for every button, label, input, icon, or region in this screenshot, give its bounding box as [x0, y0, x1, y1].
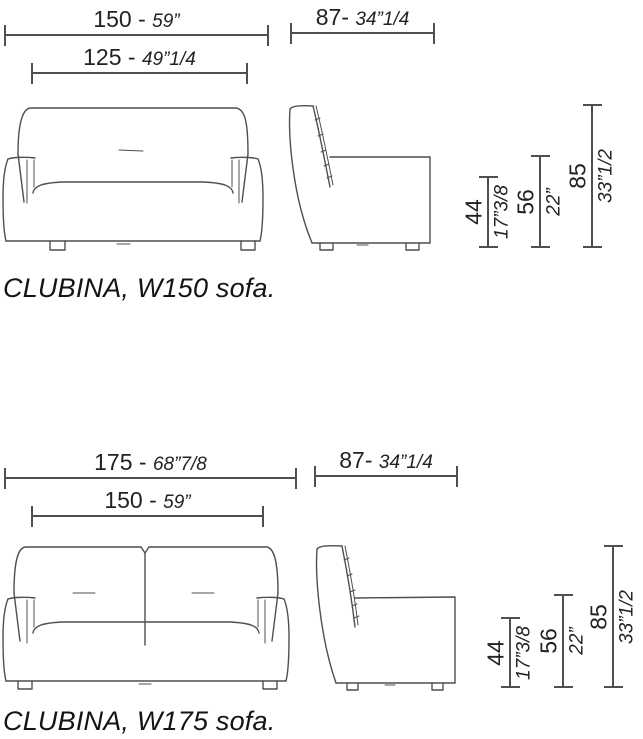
dim-cm: 44: [463, 199, 486, 225]
dim-tick: [604, 686, 623, 688]
dim-cm: 85: [588, 604, 611, 630]
dim-tick: [433, 23, 435, 44]
dim-tick: [4, 25, 6, 46]
dim-cm: 44: [485, 640, 508, 666]
dim-tick: [456, 466, 458, 487]
dim-tick: [501, 617, 520, 619]
dim-inch: 59”: [163, 492, 190, 513]
dim-cm: 150: [104, 487, 142, 513]
dim-line: [32, 515, 263, 517]
dim-cm: 87: [316, 4, 342, 30]
dim-sep: -: [122, 44, 142, 70]
dim-cm: 125: [83, 44, 121, 70]
dim-cm: 150: [93, 6, 131, 32]
dim-line: [509, 618, 511, 687]
dim-label: 150 - 59”: [5, 8, 268, 31]
dim-tick: [604, 545, 623, 547]
dim-tick: [531, 246, 550, 248]
dim-inch: 68”7/8: [153, 454, 207, 475]
dim-label: 150 - 59”: [32, 489, 263, 512]
dim-label: 125 - 49”1/4: [32, 46, 247, 69]
dim-line: [539, 156, 541, 247]
dim-line: [5, 34, 268, 36]
dim-inch: 59”: [152, 11, 179, 32]
dim-line: [32, 72, 247, 74]
dim-tick: [531, 155, 550, 157]
dim-line: [487, 177, 489, 247]
dim-tick: [479, 246, 498, 248]
dim-sep: -: [365, 447, 379, 473]
dim-cm: 175: [94, 449, 132, 475]
sofa-front-view-w150: [2, 102, 272, 252]
dim-inch: 17”3/8: [493, 185, 512, 239]
dim-tick: [4, 468, 6, 489]
dim-tick: [246, 63, 248, 84]
dim-inch: 33”1/2: [597, 149, 616, 203]
dim-line: [5, 477, 296, 479]
sofa-side-view-w150: [287, 102, 439, 252]
dim-sep: -: [133, 449, 153, 475]
dim-tick: [31, 63, 33, 84]
sofa-side-view-w175: [314, 541, 462, 693]
dim-cm: 56: [538, 628, 561, 654]
dim-tick: [290, 23, 292, 44]
dim-sep: -: [341, 4, 355, 30]
figure-caption: CLUBINA, W150 sofa.: [3, 272, 275, 304]
dim-sep: -: [143, 487, 163, 513]
dim-tick: [31, 506, 33, 527]
dim-label: 87- 34”1/4: [291, 6, 434, 29]
dim-tick: [262, 506, 264, 527]
sofa-front-view-w175: [2, 541, 292, 693]
dim-tick: [479, 176, 498, 178]
dim-label: 175 - 68”7/8: [5, 451, 296, 474]
dim-inch: 33”1/2: [618, 590, 637, 644]
dim-line: [291, 32, 434, 34]
dim-inch: 49”1/4: [142, 49, 196, 70]
dim-inch: 22”: [545, 188, 564, 215]
dim-tick: [583, 246, 602, 248]
dim-tick: [314, 466, 316, 487]
dim-line: [562, 595, 564, 687]
figure-caption: CLUBINA, W175 sofa.: [3, 705, 275, 737]
dim-inch: 22”: [568, 627, 587, 654]
dim-cm: 85: [567, 163, 590, 189]
dim-label: 87- 34”1/4: [315, 449, 457, 472]
technical-drawing-sheet: 150 - 59” 125 - 49”1/4 87- 34”1/4: [0, 0, 643, 739]
dim-cm: 56: [515, 189, 538, 215]
dim-tick: [554, 686, 573, 688]
dim-tick: [501, 686, 520, 688]
dim-inch: 34”1/4: [355, 9, 409, 30]
dim-tick: [267, 25, 269, 46]
dim-line: [612, 546, 614, 687]
dim-line: [591, 105, 593, 247]
dim-tick: [295, 468, 297, 489]
dim-sep: -: [132, 6, 152, 32]
dim-tick: [583, 104, 602, 106]
dim-inch: 17”3/8: [515, 626, 534, 680]
dim-inch: 34”1/4: [379, 452, 433, 473]
dim-cm: 87: [339, 447, 365, 473]
dim-tick: [554, 594, 573, 596]
dim-line: [315, 475, 457, 477]
